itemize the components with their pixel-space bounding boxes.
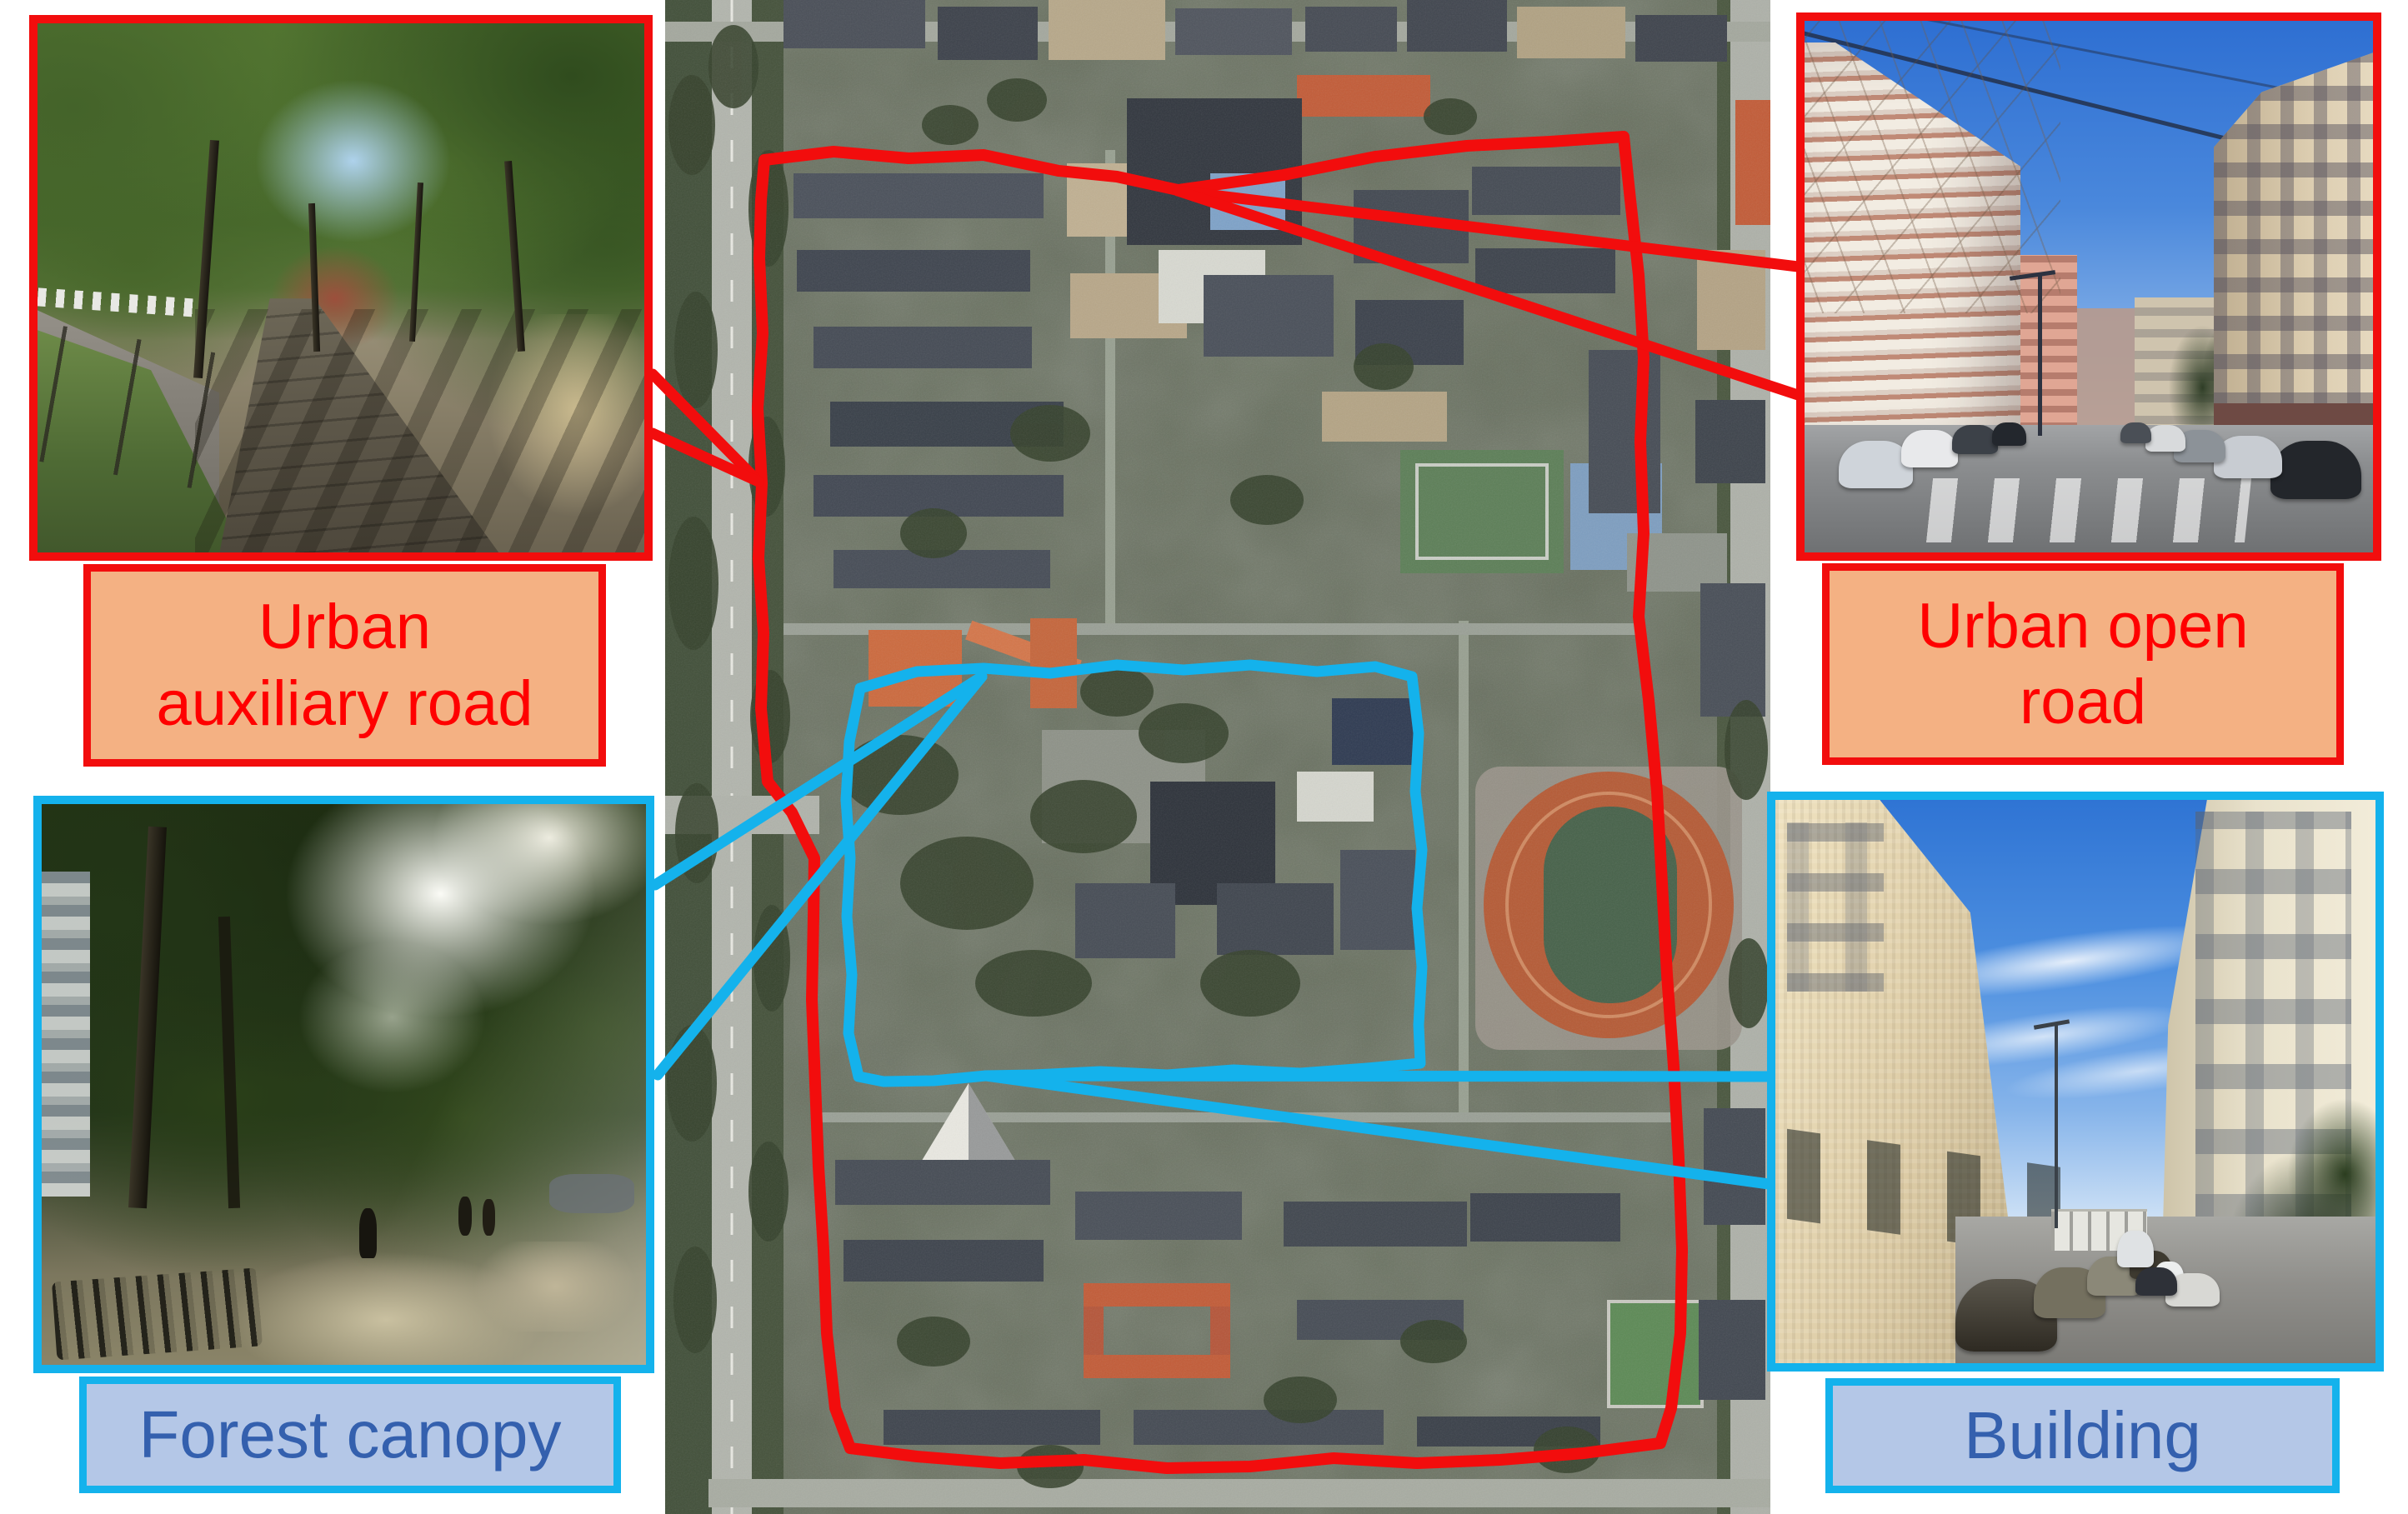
label-building: Building bbox=[1825, 1378, 2340, 1493]
photo-urban-auxiliary-road bbox=[29, 15, 653, 561]
label-line: auxiliary road bbox=[157, 666, 533, 742]
photo-urban-open-road bbox=[1796, 12, 2381, 561]
label-line: road bbox=[2020, 664, 2146, 740]
pedestrian bbox=[458, 1197, 472, 1236]
street-lamp-pole bbox=[2055, 1025, 2058, 1227]
pedestrian bbox=[483, 1199, 495, 1236]
bare-tree-branches bbox=[1805, 21, 2060, 313]
parked-car bbox=[2120, 422, 2152, 444]
street-lamp-pole bbox=[2038, 276, 2042, 435]
parked-car bbox=[1992, 422, 2026, 447]
photo-forest-canopy bbox=[33, 796, 654, 1373]
label-line: Urban bbox=[258, 589, 431, 665]
parked-car bbox=[2270, 441, 2361, 499]
building-glimpse bbox=[42, 872, 90, 1197]
label-line: Urban open bbox=[1917, 588, 2248, 664]
parked-car bbox=[2135, 1267, 2177, 1296]
label-line: Forest canopy bbox=[139, 1397, 562, 1473]
map-photo-callout-figure: Urban auxiliary road Urban open road For… bbox=[0, 0, 2408, 1514]
tree-shadow-dapple bbox=[195, 309, 644, 552]
parked-car bbox=[2145, 425, 2185, 452]
parked-car bbox=[549, 1174, 634, 1213]
satellite-map-art bbox=[665, 0, 1770, 1514]
photo-building bbox=[1767, 792, 2384, 1372]
parked-car bbox=[1952, 425, 1998, 454]
label-line: Building bbox=[1964, 1397, 2201, 1474]
sunlit-ground bbox=[465, 1242, 647, 1332]
parked-car bbox=[1901, 430, 1958, 467]
parked-bicycles bbox=[52, 1268, 262, 1361]
pedestrian bbox=[359, 1208, 378, 1259]
label-forest-canopy: Forest canopy bbox=[79, 1377, 621, 1493]
crosswalk-stripes bbox=[1926, 478, 2251, 542]
parked-van bbox=[2117, 1231, 2153, 1267]
building-windows bbox=[1787, 822, 1883, 992]
satellite-grain-texture bbox=[665, 0, 1770, 1514]
label-urban-auxiliary-road: Urban auxiliary road bbox=[83, 564, 606, 767]
label-urban-open-road: Urban open road bbox=[1822, 563, 2344, 765]
satellite-map bbox=[665, 0, 1770, 1514]
